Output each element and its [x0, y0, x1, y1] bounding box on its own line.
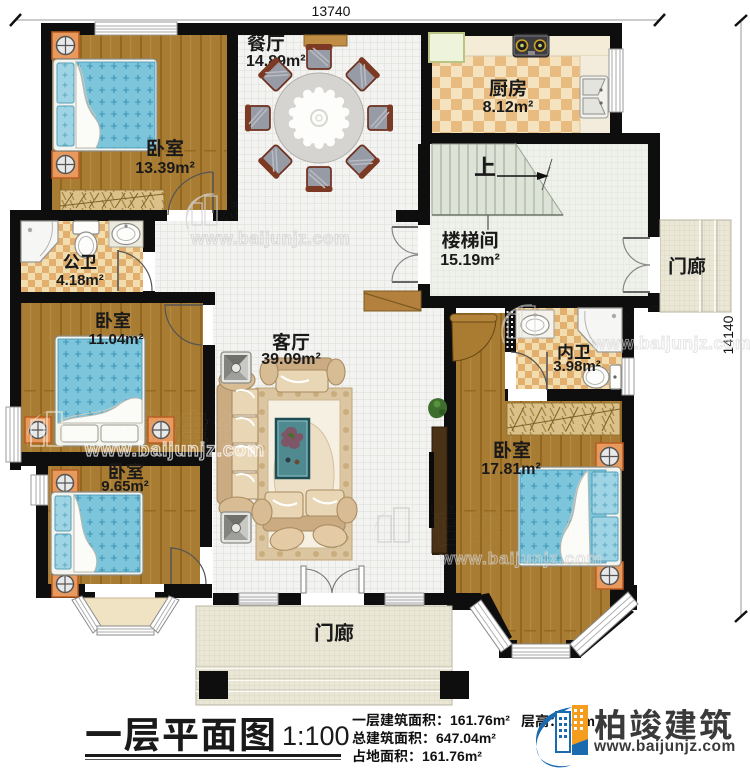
svg-text:161.76m²: 161.76m²	[450, 712, 510, 728]
svg-text:11.04m²: 11.04m²	[88, 331, 143, 348]
svg-text:www.baijunjz.com: www.baijunjz.com	[190, 228, 350, 248]
svg-text:13.39m²: 13.39m²	[135, 160, 195, 177]
svg-text:13740: 13740	[312, 3, 351, 19]
svg-text:8.12m²: 8.12m²	[483, 99, 534, 116]
svg-text:4.18m²: 4.18m²	[56, 272, 104, 289]
svg-text:647.04m²: 647.04m²	[436, 730, 496, 746]
svg-text:161.76m²: 161.76m²	[422, 748, 482, 764]
svg-text:15.19m²: 15.19m²	[440, 252, 500, 269]
svg-text:1:100: 1:100	[282, 721, 350, 751]
svg-text:39.09m²: 39.09m²	[261, 351, 321, 368]
svg-text:17.81m²: 17.81m²	[481, 461, 541, 478]
svg-text:9.65m²: 9.65m²	[101, 478, 149, 495]
svg-text:3.98m²: 3.98m²	[553, 358, 601, 375]
svg-text:www.baijunjz.com: www.baijunjz.com	[439, 549, 603, 568]
svg-text:www.baijunjz.com: www.baijunjz.com	[591, 333, 750, 353]
svg-text:www.baijunjz.com: www.baijunjz.com	[84, 440, 265, 461]
svg-text:www.baijunjz.com: www.baijunjz.com	[593, 738, 736, 755]
